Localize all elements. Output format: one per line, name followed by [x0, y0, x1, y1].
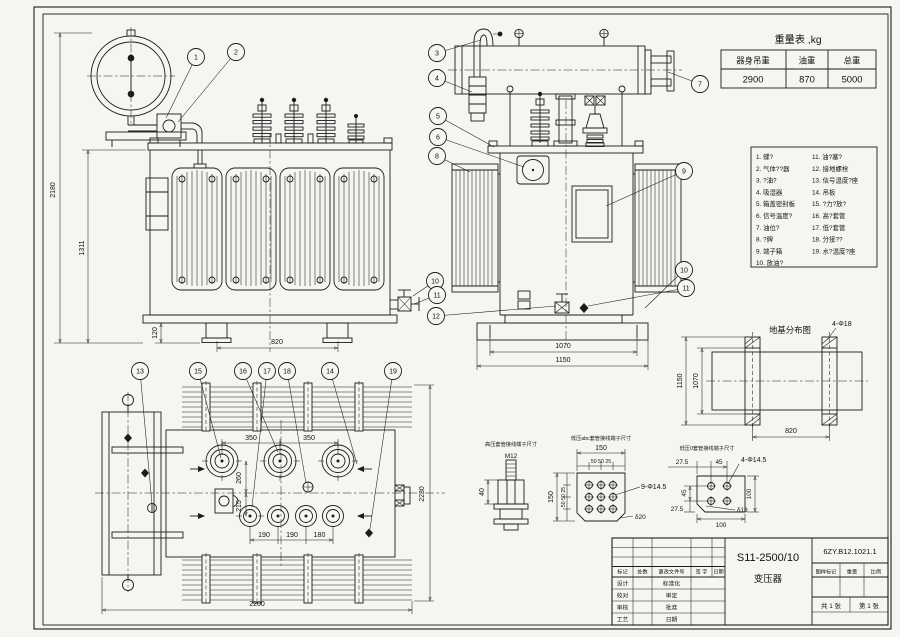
lv-o-label: 低压0套管接线端子尺寸 — [680, 444, 735, 452]
dim-total-height: 2180 — [50, 182, 57, 198]
balloon-5: 5 — [430, 108, 447, 125]
part-6: 6. 信号温度? — [756, 211, 793, 220]
dim-base-inner: 1070 — [555, 343, 571, 350]
side-bracket — [146, 178, 168, 230]
tb-count: 处数 — [637, 568, 648, 576]
drain-valve-side — [555, 294, 569, 313]
tb-change-doc: 更改文件号 — [659, 568, 685, 576]
balloon-17: 17 — [259, 363, 276, 380]
svg-text:11: 11 — [433, 293, 440, 300]
balloon-8: 8 — [429, 148, 446, 165]
lv-abc-terminal-detail: 低压abc套管接线端子尺寸 150 50 50 25 150 50 50 25 — [548, 434, 667, 521]
center-pipe-side — [554, 94, 577, 146]
val-total-weight: 5000 — [842, 74, 863, 85]
radiator-fins-top — [182, 381, 412, 433]
svg-text:12: 12 — [432, 314, 440, 321]
dim-base-height: 120 — [152, 327, 159, 339]
dim-lvo-275t: 27.5 — [676, 459, 689, 466]
drawing-sheet: 2180 1311 120 820 — [0, 0, 900, 637]
col-oil-weight: 油重 — [799, 56, 816, 66]
svg-text:14: 14 — [326, 369, 334, 376]
dim-lvabc-spacing-l: 50 50 25 — [561, 487, 567, 507]
dim-lv-pitch-1: 190 — [258, 532, 270, 539]
title-block: 标记 处数 更改文件号 签 字 日期 设计 标准化 校对 审定 审核 批准 工艺… — [612, 538, 888, 625]
part-13: 13. 信号温度?座 — [812, 176, 859, 185]
balloon-4: 4 — [429, 70, 446, 87]
top-view: 350 350 260 215 190 190 180 2200 2230 — [95, 371, 445, 614]
part-5: 5. 箱盖密封板 — [756, 199, 796, 208]
svg-text:13: 13 — [136, 369, 144, 376]
svg-text:1: 1 — [194, 55, 198, 62]
tb-mark: 标记 — [617, 568, 627, 576]
radiator-fins-bottom — [182, 553, 412, 605]
svg-text:15: 15 — [194, 369, 202, 376]
svg-text:5: 5 — [436, 114, 440, 121]
lvabc-thickness: δ20 — [635, 514, 646, 521]
drain-valve-front — [390, 290, 419, 311]
tb-date-h: 日期 — [713, 569, 723, 576]
terminal-box — [572, 186, 612, 242]
hv-terminal-detail: 高压套管接线端子尺寸 M12 40 — [479, 440, 537, 530]
dim-lvabc-150l: 150 — [548, 491, 555, 503]
tb-design: 设计 — [617, 580, 629, 588]
oil-level-gauge — [667, 51, 674, 91]
document-number: 6ZY.B12.1021.1 — [823, 547, 876, 556]
part-12: 12. 接地螺栓 — [812, 164, 849, 173]
tb-approve: 批准 — [666, 604, 678, 612]
weight-table-title: 重量表 ,kg — [775, 33, 822, 46]
svg-text:8: 8 — [435, 154, 439, 161]
svg-text:10: 10 — [431, 279, 439, 286]
dim-260: 260 — [236, 472, 243, 484]
parts-list: 1. 蝶? 2. 气体??器 3. ?油? 4. 吸湿器 5. 箱盖密封板 6.… — [751, 147, 877, 267]
tb-standardize: 标准化 — [663, 580, 681, 588]
dim-lvo-100b: 100 — [716, 522, 727, 529]
product-name: 变压器 — [754, 573, 783, 584]
balloon-11-left: 11 — [429, 287, 446, 304]
val-oil-weight: 870 — [799, 74, 815, 85]
tank-plan — [166, 430, 395, 557]
balloon-16: 16 — [235, 363, 252, 380]
dim-lvo-100r: 100 — [746, 488, 753, 499]
part-18: 18. 分接?? — [812, 235, 843, 244]
conservator-plan — [102, 395, 238, 591]
col-body-weight: 器身吊重 — [736, 56, 770, 66]
lv-bushings-plan — [236, 506, 344, 527]
balloon-3: 3 — [429, 45, 446, 62]
tb-date-row: 日期 — [666, 617, 678, 624]
part-8: 8. ?牌 — [756, 235, 774, 244]
tb-proofread: 校对 — [617, 592, 629, 600]
hv-bushings-front — [253, 98, 335, 143]
svg-text:16: 16 — [239, 369, 247, 376]
breather — [469, 77, 486, 121]
balloon-2: 2 — [228, 44, 245, 61]
lv-bushing-front — [348, 114, 364, 143]
part-4: 4. 吸湿器 — [756, 187, 783, 196]
hv-terminal-label: 高压套管接线端子尺寸 — [485, 440, 537, 448]
dim-hv-40: 40 — [479, 488, 486, 496]
svg-text:9: 9 — [682, 169, 686, 176]
part-17: 17. 低?套管 — [812, 223, 845, 232]
conservator-side — [455, 29, 674, 94]
gas-relay — [157, 114, 181, 138]
part-9: 9. 端子箱 — [756, 246, 783, 255]
balloon-12: 12 — [428, 308, 445, 325]
tb-weight: 重量 — [847, 568, 857, 576]
part-3: 3. ?油? — [756, 176, 777, 185]
lv-o-holes — [706, 481, 732, 506]
dim-hv-pitch-2: 350 — [303, 435, 315, 442]
svg-text:19: 19 — [389, 369, 397, 376]
weight-table: 重量表 ,kg 器身吊重 油重 总重 2900 870 5000 — [721, 33, 876, 88]
balloon-13: 13 — [132, 363, 149, 380]
svg-text:11: 11 — [682, 286, 689, 293]
dim-tank-height: 1311 — [79, 240, 86, 255]
dim-foundation-inner: 1070 — [693, 373, 700, 389]
balloon-7: 7 — [692, 76, 709, 93]
part-19: 19. 水?温度?座 — [812, 246, 856, 255]
part-15: 15. ?力?放? — [812, 199, 847, 208]
side-view: 1070 1150 — [413, 29, 700, 370]
balloon-11-right: 11 — [678, 280, 695, 297]
tb-sheet-number: 第 1 张 — [859, 601, 879, 610]
transformer-outline-drawing: 2180 1311 120 820 — [0, 0, 900, 637]
radiator-panels-front — [172, 168, 384, 290]
part-7: 7. 油位? — [756, 223, 780, 232]
gas-relay-piping — [106, 114, 206, 168]
thermometer — [517, 156, 549, 184]
dim-lvabc-spacing-t: 50 50 25 — [591, 459, 611, 465]
tb-sign: 签 字 — [696, 568, 708, 576]
dim-skid-span: 820 — [271, 339, 283, 346]
dim-lv-pitch-2: 190 — [286, 532, 298, 539]
dim-base-outer: 1150 — [555, 357, 570, 364]
svg-text:17: 17 — [263, 369, 271, 376]
balloon-1: 1 — [188, 49, 205, 66]
hv-thread-size: M12 — [505, 453, 518, 460]
svg-text:7: 7 — [698, 82, 702, 89]
valve-plan — [395, 485, 410, 506]
balloon-9: 9 — [676, 163, 693, 180]
dim-lvo-275l: 27.5 — [671, 506, 684, 513]
dim-lvo-45t: 45 — [715, 459, 723, 466]
tb-examine: 审定 — [666, 592, 678, 600]
balloon-19: 19 — [385, 363, 402, 380]
col-total-weight: 总重 — [844, 56, 861, 66]
part-16: 16. 高?套管 — [812, 211, 845, 220]
dim-foundation-outer: 1150 — [677, 373, 684, 388]
lv-abc-label: 低压abc套管接线端子尺寸 — [571, 434, 631, 442]
model-number: S11-2500/10 — [737, 552, 799, 564]
svg-text:18: 18 — [283, 369, 291, 376]
lvo-holes-callout: 4-Φ14.5 — [741, 457, 767, 464]
dim-hv-pitch-1: 350 — [245, 435, 257, 442]
foundation-plan: 地基分布图 4-Φ18 1150 1070 — [677, 321, 868, 441]
anchor-bolt-callout: 4-Φ18 — [832, 321, 852, 328]
tank-cover-side — [488, 146, 643, 153]
lvabc-holes-callout: 9-Φ14.5 — [641, 484, 667, 491]
side-dimensions: 1070 1150 — [477, 338, 648, 370]
part-10: 10. 放油? — [756, 258, 783, 267]
radiator-left-side — [452, 164, 500, 292]
balloon-10-right: 10 — [676, 262, 693, 279]
lv-bushing-side — [583, 96, 607, 147]
lv-abc-holes — [584, 480, 618, 514]
tb-review: 审核 — [617, 604, 629, 612]
svg-text:10: 10 — [680, 268, 688, 275]
lv-o-terminal-detail: 低压0套管接线端子尺寸 27.5 45 4-Φ14.5 45 27.5 100 … — [668, 444, 767, 529]
lvo-thickness: δ18 — [737, 507, 748, 514]
svg-text:6: 6 — [436, 135, 440, 142]
part-2: 2. 气体??器 — [756, 164, 790, 173]
balloon-6: 6 — [430, 129, 447, 146]
dim-lvabc-150t: 150 — [595, 445, 607, 452]
base-slab — [477, 323, 648, 340]
dim-lv-pitch-3: 180 — [314, 532, 326, 539]
val-body-weight: 2900 — [743, 74, 764, 85]
balloon-14: 14 — [322, 363, 339, 380]
svg-text:2: 2 — [234, 50, 238, 57]
dim-lvo-45l: 45 — [681, 489, 688, 497]
tb-drawing-mark: 图样标记 — [816, 568, 837, 576]
part-11: 11. 油?塞? — [812, 152, 843, 161]
balloon-18: 18 — [279, 363, 296, 380]
hv-bushing-side — [531, 92, 549, 146]
dim-foundation-span: 820 — [785, 428, 797, 435]
conservator-front — [91, 30, 171, 116]
part-1: 1. 蝶? — [756, 152, 773, 161]
svg-text:4: 4 — [435, 76, 439, 83]
dim-overall-width: 2200 — [249, 601, 265, 608]
svg-text:3: 3 — [435, 51, 439, 58]
part-14: 14. 吊板 — [812, 187, 836, 196]
front-view: 2180 1311 120 820 — [50, 27, 419, 352]
tb-sheet-total: 共 1 张 — [821, 601, 841, 610]
foundation-title: 地基分布图 — [769, 325, 811, 335]
tb-process: 工艺 — [617, 616, 629, 624]
dim-overall-depth: 2230 — [419, 486, 426, 502]
tb-scale: 比例 — [871, 568, 881, 576]
dim-215: 215 — [236, 500, 243, 512]
balloon-15: 15 — [190, 363, 207, 380]
